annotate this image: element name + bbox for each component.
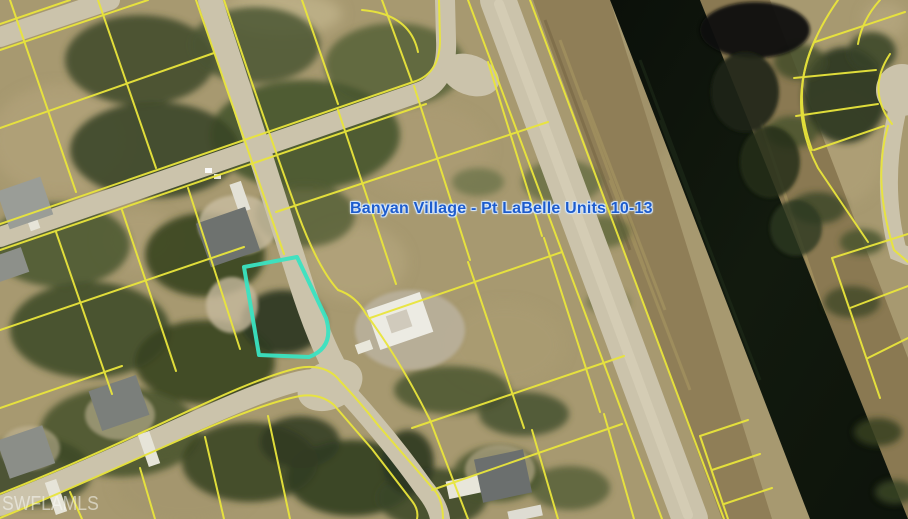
pond bbox=[700, 2, 810, 58]
aerial-parcel-map: Banyan Village - Pt LaBelle Units 10-13 … bbox=[0, 0, 908, 519]
map-annotation-label: Banyan Village - Pt LaBelle Units 10-13 bbox=[350, 199, 653, 219]
aerial-basemap bbox=[0, 0, 908, 519]
vehicle bbox=[205, 168, 212, 173]
mls-watermark: SWFLAMLS bbox=[2, 493, 99, 515]
